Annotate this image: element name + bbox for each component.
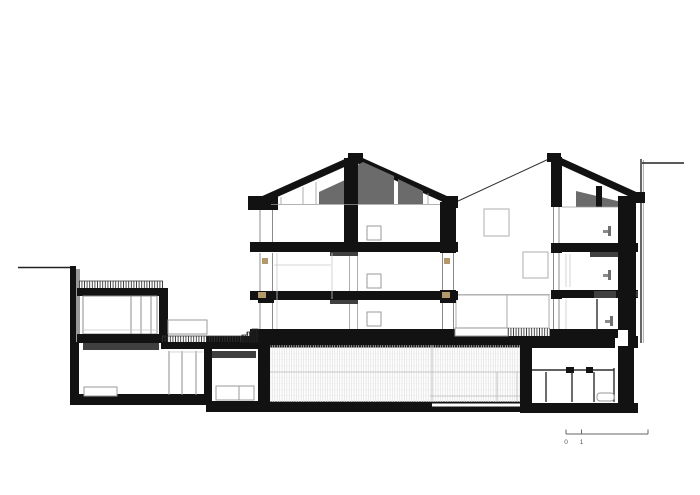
scale-bar: 0 1 bbox=[564, 430, 648, 447]
basement-sofa bbox=[239, 386, 254, 400]
terrace-green-roof-hatch bbox=[508, 328, 550, 336]
right-wall bbox=[440, 202, 456, 329]
ceiling-band bbox=[212, 351, 256, 358]
attic-panel-left bbox=[319, 180, 345, 204]
ceiling-band bbox=[83, 343, 159, 350]
lintel-middle bbox=[330, 300, 358, 304]
left-wall bbox=[258, 210, 274, 329]
planter-box bbox=[168, 320, 207, 334]
wall-segment bbox=[258, 299, 274, 303]
annex-roof-slab bbox=[77, 288, 168, 296]
attic-panel-center bbox=[356, 162, 394, 204]
annex-floor-slab bbox=[77, 334, 168, 343]
bathtub bbox=[597, 393, 614, 401]
timber-sill bbox=[442, 292, 450, 298]
fixture-symbol bbox=[603, 270, 611, 280]
terrace-slab bbox=[455, 328, 508, 336]
gable-outline bbox=[456, 158, 551, 202]
timber-sill bbox=[258, 292, 266, 298]
wall-cabinet-box bbox=[367, 226, 381, 240]
ceiling-band bbox=[594, 291, 616, 298]
right-building-plinth bbox=[550, 329, 618, 338]
basement-sofa bbox=[216, 386, 239, 400]
fixture-symbol bbox=[603, 226, 611, 236]
terrace-slab-black bbox=[161, 342, 265, 349]
elevation-window-lower bbox=[523, 252, 548, 278]
ground-glazing-right bbox=[507, 295, 549, 328]
scale-label-0: 0 bbox=[564, 439, 568, 446]
terrace-hatch-strip bbox=[162, 336, 242, 342]
attic-divider-wall bbox=[596, 186, 602, 207]
basement-right-wall bbox=[618, 346, 634, 406]
basement bbox=[70, 342, 638, 413]
party-wall bbox=[618, 196, 636, 330]
fixture-symbol bbox=[605, 316, 613, 326]
mid-terrace bbox=[161, 320, 265, 349]
basement-wall bbox=[520, 343, 532, 403]
rear-building-elevation bbox=[454, 158, 551, 328]
scale-label-1: 1 bbox=[580, 439, 584, 446]
annex-right-wall bbox=[159, 288, 168, 336]
annex-pavilion bbox=[77, 281, 168, 343]
door-head-block bbox=[566, 367, 574, 373]
wall-cabinet-box bbox=[367, 312, 381, 326]
elevation-window-upper bbox=[484, 209, 509, 236]
ground-glazing-left bbox=[456, 295, 507, 328]
wall-cabinet-box bbox=[367, 274, 381, 288]
building-section-drawing: 0 1 bbox=[0, 0, 700, 495]
attic-center-wall bbox=[344, 158, 358, 243]
left-building-section bbox=[248, 153, 458, 329]
annex-window-band bbox=[83, 296, 157, 334]
door-head-block bbox=[586, 367, 593, 373]
retaining-wall-shadow bbox=[76, 269, 80, 342]
party-wall-stub bbox=[628, 330, 636, 346]
basement-wall bbox=[258, 343, 270, 403]
wall-segment bbox=[440, 202, 456, 253]
slab-middle bbox=[250, 291, 458, 300]
wall-segment bbox=[551, 157, 562, 207]
basement-cabinet bbox=[84, 387, 117, 396]
right-building-section bbox=[547, 153, 645, 346]
slab-upper bbox=[250, 242, 458, 252]
annex-green-roof-hatch bbox=[79, 281, 163, 288]
left-building-plinth bbox=[250, 329, 458, 338]
retaining-wall bbox=[70, 266, 76, 343]
timber-sill bbox=[444, 258, 450, 264]
timber-sill bbox=[262, 258, 268, 264]
lintel-upper bbox=[330, 252, 358, 256]
pool-room-hatch bbox=[270, 345, 520, 402]
eave-block-left bbox=[248, 196, 278, 210]
basement-partition-wall bbox=[204, 349, 212, 402]
pool-floor-strip bbox=[432, 404, 520, 407]
